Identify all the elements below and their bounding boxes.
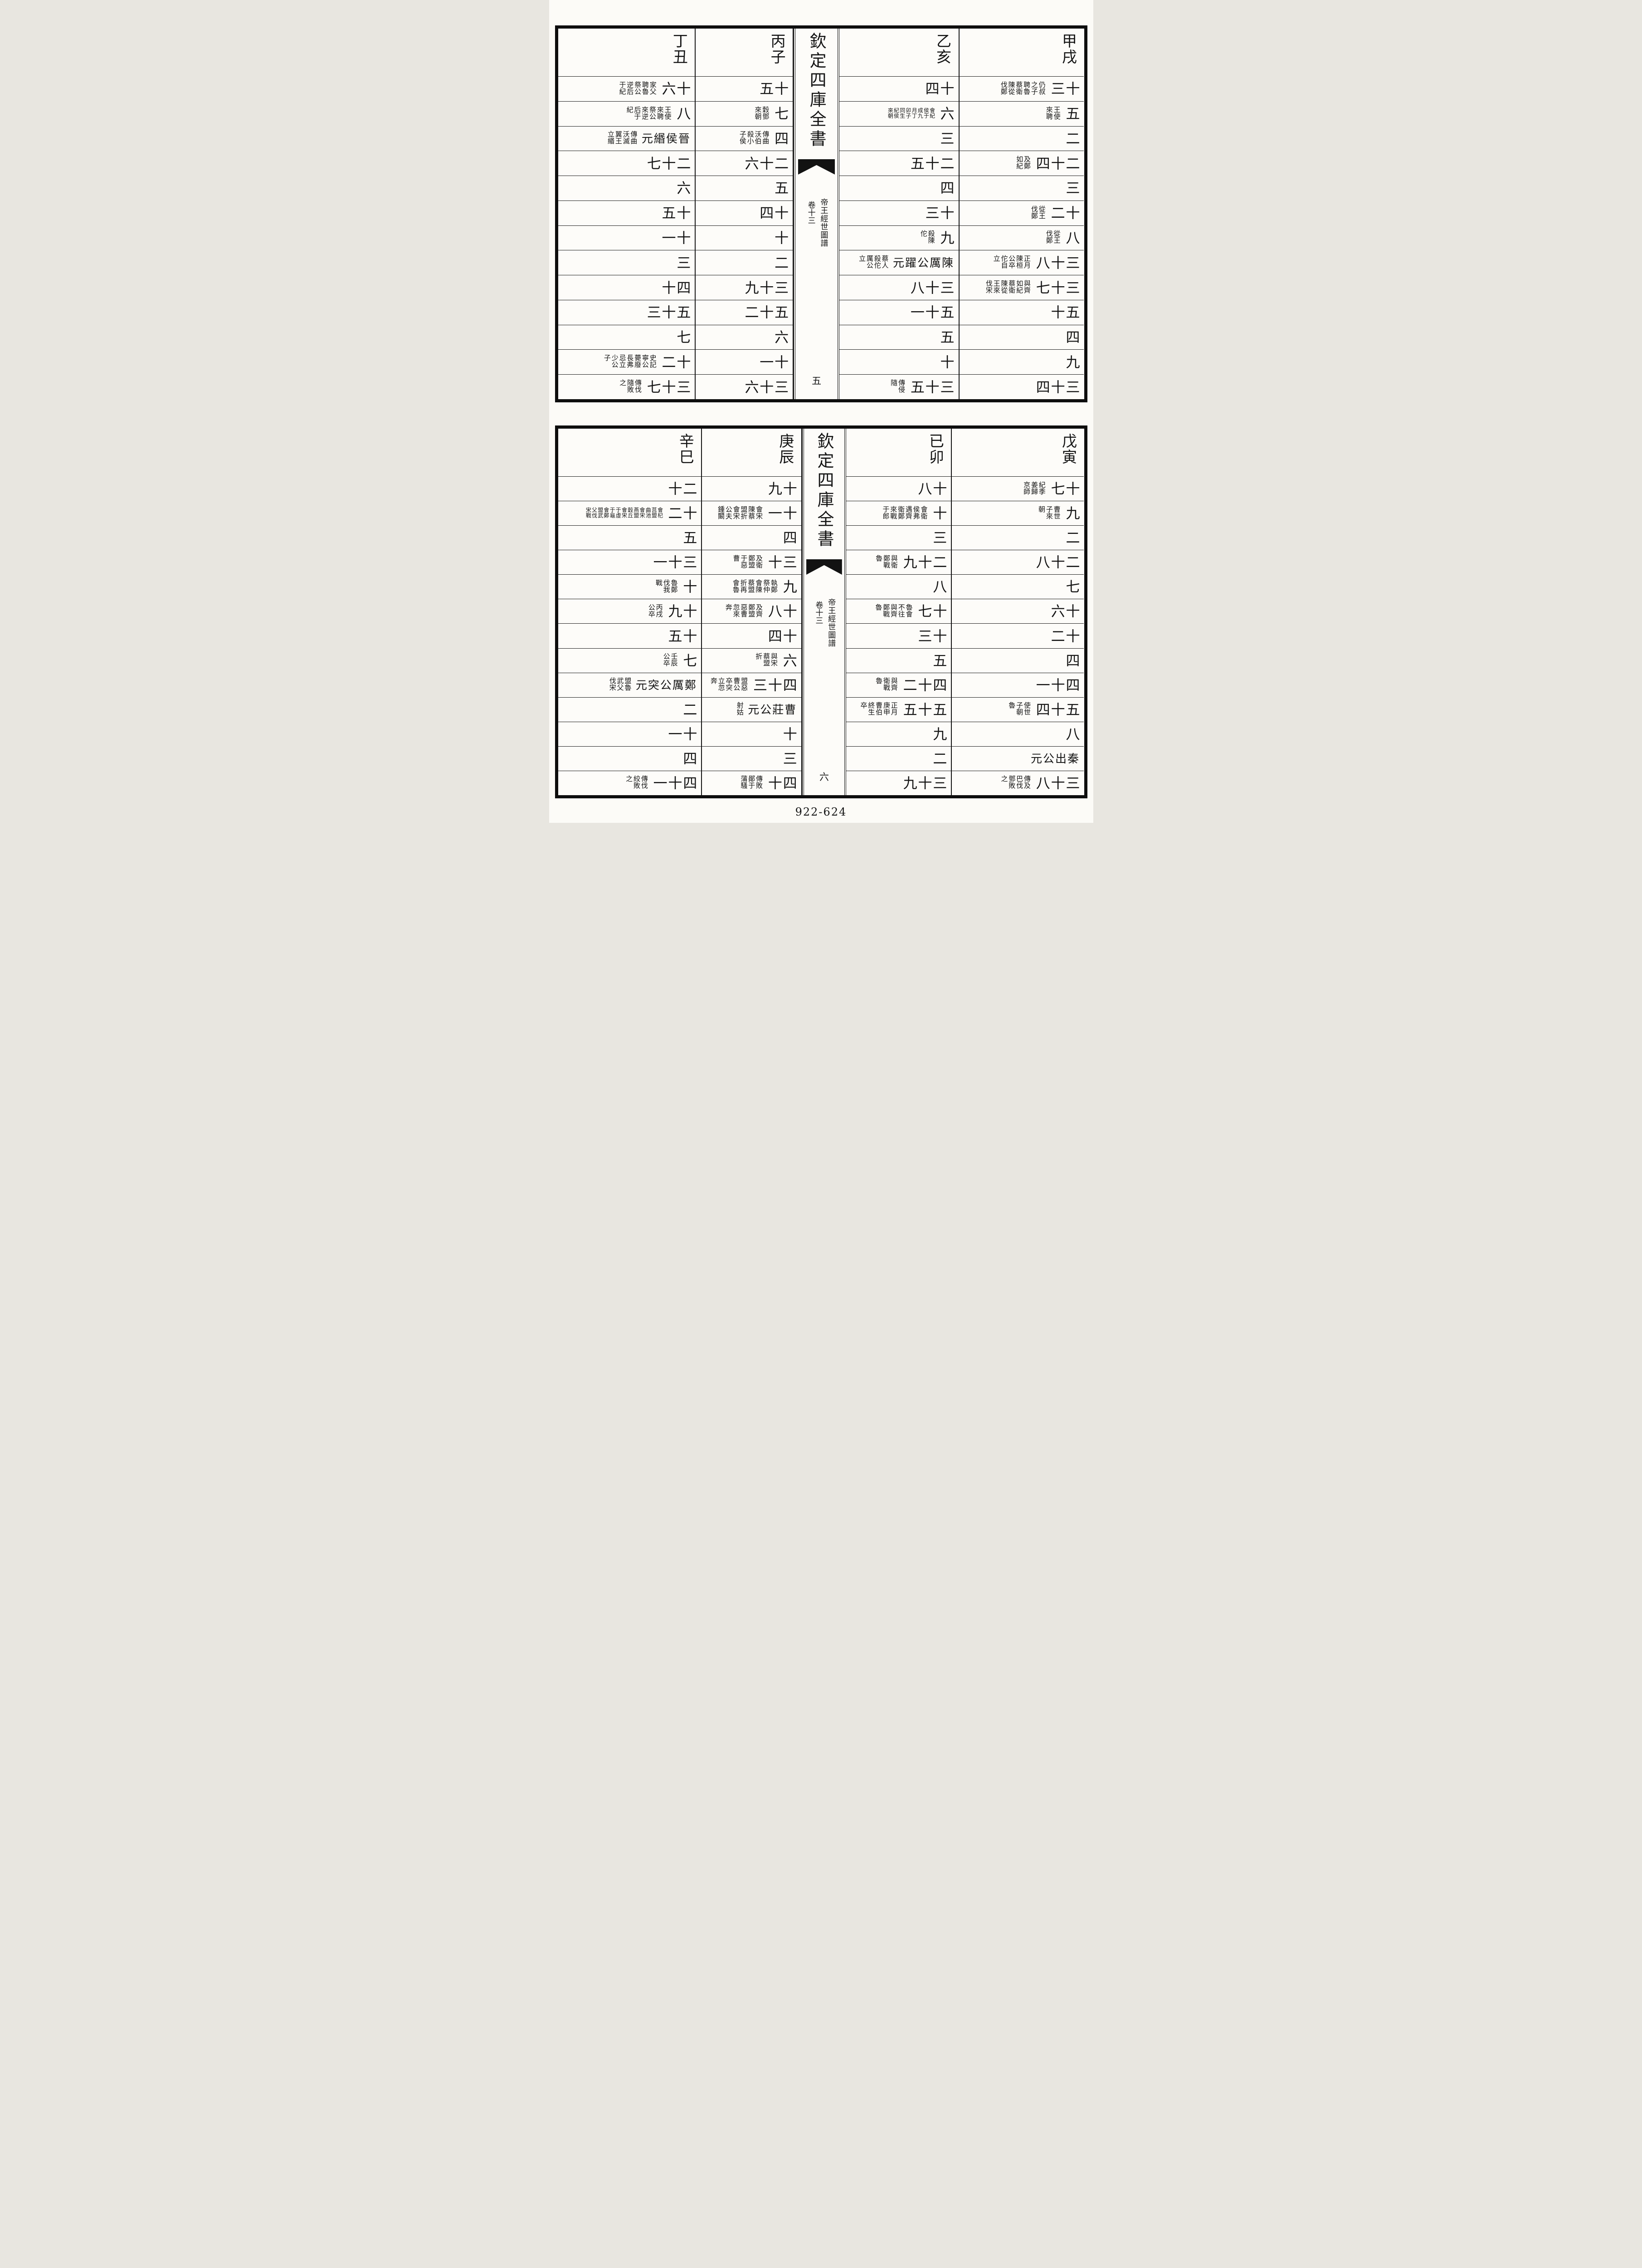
year-row: 十四 [839, 77, 958, 102]
year-number: 十二 [1049, 205, 1079, 220]
year-row: 七 [952, 575, 1084, 599]
event-annotation: 丙戌公卒 [648, 604, 663, 620]
year-number: 二十五 [908, 156, 953, 171]
year-number: 十 [938, 355, 953, 370]
year-number: 十 [931, 506, 945, 521]
year-column-已卯: 已卯十八會衛侯弗遇齊衛鄭來戰于郎十三與衛鄭戰魯二十九八魯會不往與齊鄭戰魯十七十三… [846, 429, 952, 795]
stem-header: 辛巳 [677, 433, 693, 465]
year-number: 三十一 [651, 555, 696, 570]
year-number: 八 [931, 579, 945, 594]
year-row: 三 [960, 176, 1084, 201]
event-annotation: 傳敗鄖于蒲騷 [740, 775, 763, 792]
event-annotation: 紀季姜歸京師 [1023, 481, 1045, 498]
year-row: 五 [696, 176, 793, 201]
year-row: 三十九 [696, 275, 793, 300]
year-row: 三十六 [696, 375, 793, 399]
spine-column: 欽定四庫全書帝王經世圖譜卷十三六 [802, 429, 846, 795]
event-annotation: 傳侵隨 [890, 379, 905, 396]
event-annotation: 盟惡曹公卒突立忽奔 [710, 677, 748, 694]
year-number: 五十一 [908, 305, 953, 320]
year-number: 九 [938, 230, 953, 245]
year-row: 二十五 [839, 151, 958, 176]
year-number: 七 [681, 653, 696, 668]
year-row: 五 [846, 649, 951, 673]
event-annotation: 與齊如紀蔡衛陳從王來伐宋 [985, 280, 1031, 296]
year-number: 三十八 [1034, 776, 1079, 791]
year-row: 二十八 [952, 550, 1084, 575]
year-number: 十一 [660, 230, 690, 245]
folio-grid: 丁丑家父聘魯祭公逆后于紀十六王使來聘祭公來逆后于紀八傳曲沃滅翼王立緡晉侯緡元二十… [558, 29, 1084, 399]
year-number: 十一 [666, 727, 696, 742]
spine-column: 欽定四庫全書帝王經世圖譜卷十三五 [794, 29, 839, 399]
year-row: 六 [558, 176, 695, 201]
year-number: 十三 [1049, 81, 1079, 96]
year-row: 十四 [696, 201, 793, 226]
event-annotation: 傳伐隨敗之 [619, 379, 641, 396]
year-number: 三 [938, 131, 953, 146]
year-number: 三十六 [743, 380, 788, 395]
year-row: 四 [839, 176, 958, 201]
stem-header: 乙亥 [935, 33, 950, 65]
year-row: 及鄭如紀二十四 [960, 151, 1084, 176]
year-row: 紀季姜歸京師十七 [952, 477, 1084, 501]
event-annotation: 使世子朝魯 [1008, 702, 1031, 718]
year-row: 五十 [960, 300, 1084, 325]
year-row: 三 [846, 526, 951, 550]
year-number: 十七 [916, 604, 946, 619]
year-row: 史記寧公薨廢長弗忌立少公子十二 [558, 350, 695, 375]
event-annotation: 蔡人殺佗厲公立 [858, 255, 888, 271]
year-rows: 仍叔之子聘魯蔡衛陳從伐鄭十三王使來聘五二及鄭如紀二十四三從王伐鄭十二從王伐鄭八正… [960, 77, 1084, 399]
event-annotation: 及衛鄭盟于惡曹 [732, 555, 763, 571]
ruler-accession-text: 曹莊公元 [747, 704, 796, 716]
year-row: 十五 [558, 201, 695, 226]
year-number: 十三 [923, 205, 953, 220]
year-number: 三 [1064, 181, 1079, 196]
year-number: 三十八 [1034, 255, 1079, 270]
volume-label: 卷十三 [814, 601, 822, 624]
year-row: 四 [952, 649, 1084, 673]
stem-header: 庚辰 [777, 433, 793, 465]
year-number: 四十 [660, 280, 690, 295]
year-number: 九 [1064, 355, 1079, 370]
year-column-辛巳: 辛巳二十會杞莒盟曲池會宋燕盟穀丘會宋于虛于龜會鄭盟武父伐宋戰十二五三十一魯鄭伐我… [558, 429, 702, 795]
ruler-accession-text: 秦出公元 [1029, 753, 1078, 765]
year-number: 九 [1064, 506, 1079, 521]
year-number: 二 [1064, 530, 1079, 545]
event-annotation: 從王伐鄭 [1045, 230, 1061, 246]
year-row: 正月陳桓公卒佗自立三十八 [960, 250, 1084, 275]
stem-header-cell: 辛巳 [558, 429, 702, 477]
event-annotation: 殺陳佗 [920, 230, 935, 246]
year-number: 八 [1064, 230, 1079, 245]
year-column-甲戌: 甲戌仍叔之子聘魯蔡衛陳從伐鄭十三王使來聘五二及鄭如紀二十四三從王伐鄭十二從王伐鄭… [960, 29, 1084, 399]
event-annotation: 史記寧公薨廢長弗忌立少公子 [603, 354, 657, 371]
year-row: 與宋蔡盟折六 [702, 649, 801, 673]
year-row: 十 [696, 226, 793, 251]
event-annotation: 會衛侯弗遇齊衛鄭來戰于郎 [882, 506, 928, 522]
stem-header-cell: 已卯 [846, 429, 951, 477]
event-annotation: 及鄭如紀 [1015, 156, 1031, 172]
year-column-丙子: 丙子十五穀鄧來朝七傳曲沃伯殺小子侯四二十六五十四十二三十九五十二六十一三十六 [696, 29, 794, 399]
stem-header-cell: 乙亥 [839, 29, 958, 77]
event-annotation: 正月陳桓公卒佗自立 [993, 255, 1031, 271]
fishtail-icon [806, 559, 842, 575]
year-number: 十 [681, 579, 696, 594]
event-annotation: 及齊鄭盟惡曹忽來奔 [725, 604, 763, 620]
year-number: 二 [1064, 131, 1079, 146]
year-row: 十 [839, 350, 958, 375]
year-number: 五 [1064, 106, 1079, 121]
year-row: 六 [696, 325, 793, 350]
year-row: 傳伐絞敗之四十一 [558, 771, 702, 795]
page-number: 六 [804, 770, 844, 783]
stem-header-cell: 庚辰 [702, 429, 801, 477]
year-row: 曹世子來朝九 [952, 501, 1084, 526]
event-annotation: 魯鄭伐我戰 [655, 579, 677, 596]
year-row: 穀鄧來朝七 [696, 102, 793, 127]
year-number: 十五 [666, 629, 696, 644]
year-row: 秦出公元 [952, 747, 1084, 771]
event-annotation: 傳及巴伐鄧敗之 [1000, 775, 1031, 792]
year-row: 三 [839, 127, 958, 152]
event-annotation: 正月庚申曹伯終生卒 [860, 702, 898, 718]
year-row: 四十 [558, 275, 695, 300]
year-row: 三十四 [960, 375, 1084, 399]
year-number: 八 [675, 106, 690, 121]
year-number: 三 [931, 530, 945, 545]
year-rows: 十五穀鄧來朝七傳曲沃伯殺小子侯四二十六五十四十二三十九五十二六十一三十六 [696, 77, 793, 399]
year-row: 十九 [702, 477, 801, 501]
stem-header-cell: 甲戌 [960, 29, 1084, 77]
book-title: 帝王經世圖譜 [826, 598, 834, 647]
year-row: 七 [558, 325, 695, 350]
year-row: 王使來聘祭公來逆后于紀八 [558, 102, 695, 127]
stem-header: 丙子 [769, 33, 785, 65]
year-number: 十三 [916, 629, 946, 644]
year-number: 四 [1064, 330, 1079, 345]
year-row: 五 [839, 325, 958, 350]
year-number: 六 [772, 330, 787, 345]
year-row: 壬辰公卒七 [558, 649, 702, 673]
event-annotation: 與衛鄭戰魯 [875, 555, 897, 571]
year-row: 從王伐鄭八 [960, 226, 1084, 251]
year-column-丁丑: 丁丑家父聘魯祭公逆后于紀十六王使來聘祭公來逆后于紀八傳曲沃滅翼王立緡晉侯緡元二十… [558, 29, 696, 399]
event-annotation: 射姑 [736, 702, 744, 718]
event-annotation: 會杞莒盟曲池會宋燕盟穀丘會宋于虛于龜會鄭盟武父伐宋戰 [585, 507, 663, 520]
event-annotation: 穀鄧來朝 [754, 106, 770, 122]
event-annotation: 與齊衛戰魯 [875, 677, 897, 694]
year-row: 五十三 [558, 300, 695, 325]
event-annotation: 傳伐絞敗之 [625, 775, 648, 792]
year-rows: 十九會宋陳蔡盟折會宋公夫鍾闞十一四及衛鄭盟于惡曹三十執鄭祭仲會陳蔡盟折再會魯九及… [702, 477, 801, 795]
year-row: 與齊如紀蔡衛陳從王來伐宋三十七 [960, 275, 1084, 300]
year-number: 七 [772, 106, 787, 121]
year-row: 從王伐鄭十二 [960, 201, 1084, 226]
year-row: 十六 [952, 599, 1084, 624]
year-number: 八 [1064, 727, 1079, 742]
event-annotation: 盟魯武父伐宋 [609, 677, 631, 694]
stem-header: 丁丑 [671, 33, 687, 65]
year-row: 蔡人殺佗厲公立陳厲公躍元 [839, 250, 958, 275]
event-annotation: 仍叔之子聘魯蔡衛陳從伐鄭 [1000, 81, 1046, 98]
year-row: 魯會不往與齊鄭戰魯十七 [846, 599, 951, 624]
year-number: 十四 [757, 205, 787, 220]
year-number: 六 [938, 106, 953, 121]
year-row: 五十一 [839, 300, 958, 325]
year-row: 與齊衛戰魯四十二 [846, 673, 951, 698]
year-row: 三十八 [839, 275, 958, 300]
year-row: 十五 [558, 624, 702, 648]
year-row: 及齊鄭盟惡曹忽來奔十八 [702, 599, 801, 624]
year-row: 二 [558, 698, 702, 722]
year-row: 使世子朝魯五十四 [952, 698, 1084, 722]
year-row: 與衛鄭戰魯二十九 [846, 550, 951, 575]
stem-header: 已卯 [927, 433, 943, 465]
year-number: 十 [781, 727, 796, 742]
year-number: 十八 [916, 481, 946, 496]
year-row: 會衛侯弗遇齊衛鄭來戰于郎十 [846, 501, 951, 526]
year-number: 九 [931, 727, 945, 742]
event-annotation: 王使來聘祭公來逆后于紀 [626, 106, 672, 122]
year-number: 十六 [1049, 604, 1079, 619]
year-number: 三十四 [1034, 380, 1079, 395]
year-number: 十二 [1049, 629, 1079, 644]
year-number: 十一 [757, 355, 787, 370]
year-number: 二十八 [1034, 555, 1079, 570]
stem-header-cell: 丙子 [696, 29, 793, 77]
year-row: 九 [846, 722, 951, 747]
year-row: 會杞莒盟曲池會宋燕盟穀丘會宋于虛于龜會鄭盟武父伐宋戰十二 [558, 501, 702, 526]
year-number: 五 [772, 181, 787, 196]
year-number: 十二 [660, 355, 690, 370]
year-row: 十八 [846, 477, 951, 501]
year-row: 會宋陳蔡盟折會宋公夫鍾闞十一 [702, 501, 801, 526]
year-number: 五十二 [743, 305, 788, 320]
year-row: 執鄭祭仲會陳蔡盟折再會魯九 [702, 575, 801, 599]
lower-folio-block: 辛巳二十會杞莒盟曲池會宋燕盟穀丘會宋于虛于龜會鄭盟武父伐宋戰十二五三十一魯鄭伐我… [555, 425, 1087, 798]
year-row: 十一 [558, 226, 695, 251]
year-row: 王使來聘五 [960, 102, 1084, 127]
page-number: 五 [795, 374, 838, 387]
book-title: 帝王經世圖譜 [819, 198, 827, 247]
year-number: 三 [675, 255, 690, 270]
year-number: 十六 [660, 81, 690, 96]
event-annotation: 與宋蔡盟折 [755, 653, 777, 669]
year-number: 四 [938, 181, 953, 196]
year-number: 四 [1064, 653, 1079, 668]
year-number: 四 [781, 530, 796, 545]
year-column-庚辰: 庚辰十九會宋陳蔡盟折會宋公夫鍾闞十一四及衛鄭盟于惡曹三十執鄭祭仲會陳蔡盟折再會魯… [702, 429, 802, 795]
year-row: 十三 [846, 624, 951, 648]
year-row: 傳曲沃滅翼王立緡晉侯緡元 [558, 127, 695, 152]
year-row: 四 [960, 325, 1084, 350]
year-row: 二 [952, 526, 1084, 550]
year-number: 五十 [1049, 305, 1079, 320]
year-number: 三十八 [908, 280, 953, 295]
year-number: 十七 [1049, 481, 1079, 496]
year-number: 五 [931, 653, 945, 668]
spine-labels: 帝王經世圖譜卷十三 [814, 598, 835, 647]
year-rows: 二十會杞莒盟曲池會宋燕盟穀丘會宋于虛于龜會鄭盟武父伐宋戰十二五三十一魯鄭伐我戰十… [558, 477, 702, 795]
year-row: 傳敗鄖于蒲騷四十 [702, 771, 801, 795]
year-number: 六 [675, 181, 690, 196]
year-number: 十八 [766, 604, 796, 619]
year-row: 丙戌公卒十九 [558, 599, 702, 624]
year-number: 三 [781, 751, 796, 766]
year-number: 三十七 [645, 380, 690, 395]
year-column-乙亥: 乙亥十四會紀侯于成九月丁卯子同生紀侯來朝六三二十五四十三殺陳佗九蔡人殺佗厲公立陳… [839, 29, 959, 399]
year-row: 二十 [558, 477, 702, 501]
event-annotation: 傳曲沃伯殺小子侯 [739, 131, 769, 147]
year-number: 十九 [666, 604, 696, 619]
event-annotation: 魯會不往與齊鄭戰魯 [875, 604, 913, 620]
year-number: 五 [938, 330, 953, 345]
year-number: 四十一 [1034, 678, 1079, 693]
year-row: 盟惡曹公卒突立忽奔四十三 [702, 673, 801, 698]
year-number: 三十五 [908, 380, 953, 395]
year-number: 三十七 [1034, 280, 1079, 295]
year-number: 十四 [766, 629, 796, 644]
year-number: 四十三 [751, 678, 796, 693]
year-number: 二十七 [645, 156, 690, 171]
year-row: 正月庚申曹伯終生卒五十五 [846, 698, 951, 722]
year-row: 十一 [558, 722, 702, 747]
year-row: 五十二 [696, 300, 793, 325]
year-number: 六 [781, 653, 796, 668]
year-number: 二十四 [1034, 156, 1079, 171]
year-row: 魯鄭伐我戰十 [558, 575, 702, 599]
year-number: 三十九 [901, 776, 946, 791]
year-number: 十一 [766, 506, 796, 521]
year-number: 四十二 [901, 678, 946, 693]
year-row: 四 [702, 526, 801, 550]
year-row: 十三 [839, 201, 958, 226]
year-rows: 十四會紀侯于成九月丁卯子同生紀侯來朝六三二十五四十三殺陳佗九蔡人殺佗厲公立陳厲公… [839, 77, 958, 399]
event-annotation: 執鄭祭仲會陳蔡盟折再會魯 [732, 579, 778, 596]
year-row: 會紀侯于成九月丁卯子同生紀侯來朝六 [839, 102, 958, 127]
year-number: 十 [772, 230, 787, 245]
spine-title: 欽定四庫全書 [808, 32, 825, 149]
year-row: 盟魯武父伐宋鄭厲公突元 [558, 673, 702, 698]
year-row: 二十七 [558, 151, 695, 176]
event-annotation: 家父聘魯祭公逆后于紀 [619, 81, 657, 98]
footer-code: 922-624 [549, 806, 1093, 818]
year-number: 九 [781, 579, 796, 594]
year-number: 二 [772, 255, 787, 270]
year-number: 五十三 [645, 305, 690, 320]
year-number: 七 [675, 330, 690, 345]
year-number: 三十 [766, 555, 796, 570]
year-row: 三十九 [846, 771, 951, 795]
year-row: 九 [960, 350, 1084, 375]
year-row: 二 [960, 127, 1084, 152]
year-number: 二十 [666, 481, 696, 496]
year-row: 十一 [696, 350, 793, 375]
year-number: 十五 [660, 205, 690, 220]
year-number: 三十九 [743, 280, 788, 295]
year-row: 殺陳佗九 [839, 226, 958, 251]
year-rows: 十八會衛侯弗遇齊衛鄭來戰于郎十三與衛鄭戰魯二十九八魯會不往與齊鄭戰魯十七十三五與… [846, 477, 951, 795]
stem-header-cell: 戊寅 [952, 429, 1084, 477]
event-annotation: 會紀侯于成九月丁卯子同生紀侯來朝 [887, 108, 935, 121]
year-row: 傳及巴伐鄧敗之三十八 [952, 771, 1084, 795]
year-number: 二十九 [901, 555, 946, 570]
year-row: 四 [558, 747, 702, 771]
year-row: 二 [846, 747, 951, 771]
year-row: 傳伐隨敗之三十七 [558, 375, 695, 399]
year-number: 七 [1064, 579, 1079, 594]
year-row: 二 [696, 250, 793, 275]
year-number: 五十四 [1034, 702, 1079, 717]
event-annotation: 曹世子來朝 [1038, 506, 1060, 522]
fishtail-icon [798, 159, 835, 175]
year-number: 十五 [757, 81, 787, 96]
folio-grid: 辛巳二十會杞莒盟曲池會宋燕盟穀丘會宋于虛于龜會鄭盟武父伐宋戰十二五三十一魯鄭伐我… [558, 429, 1084, 795]
year-column-戊寅: 戊寅紀季姜歸京師十七曹世子來朝九二二十八七十六十二四四十一使世子朝魯五十四八秦出… [952, 429, 1084, 795]
event-annotation: 傳曲沃滅翼王立緡 [607, 131, 637, 147]
volume-label: 卷十三 [806, 201, 814, 224]
year-rows: 紀季姜歸京師十七曹世子來朝九二二十八七十六十二四四十一使世子朝魯五十四八秦出公元… [952, 477, 1084, 795]
year-row: 仍叔之子聘魯蔡衛陳從伐鄭十三 [960, 77, 1084, 102]
year-number: 四 [681, 751, 696, 766]
event-annotation: 從王伐鄭 [1030, 205, 1046, 222]
event-annotation: 壬辰公卒 [663, 653, 678, 669]
year-row: 射姑曹莊公元 [702, 698, 801, 722]
year-row: 三十一 [558, 550, 702, 575]
year-number: 四十一 [651, 776, 696, 791]
year-number: 四十 [766, 776, 796, 791]
event-annotation: 會宋陳蔡盟折會宋公夫鍾闞 [717, 506, 763, 522]
year-row: 二十六 [696, 151, 793, 176]
ruler-accession-text: 陳厲公躍元 [892, 257, 953, 269]
year-row: 家父聘魯祭公逆后于紀十六 [558, 77, 695, 102]
year-number: 二 [931, 751, 945, 766]
ruler-accession-text: 晉侯緡元 [640, 132, 689, 145]
stem-header: 甲戌 [1060, 33, 1076, 65]
year-number: 五 [681, 530, 696, 545]
year-row: 及衛鄭盟于惡曹三十 [702, 550, 801, 575]
event-annotation: 王使來聘 [1045, 106, 1061, 122]
year-row: 八 [952, 722, 1084, 747]
year-number: 二十六 [743, 156, 788, 171]
year-number: 十四 [923, 81, 953, 96]
year-row: 三 [558, 250, 695, 275]
year-row: 十五 [696, 77, 793, 102]
ruler-accession-text: 鄭厲公突元 [634, 679, 696, 691]
year-row: 八 [846, 575, 951, 599]
year-number: 十九 [766, 481, 796, 496]
spine-labels: 帝王經世圖譜卷十三 [806, 198, 827, 247]
year-row: 五 [558, 526, 702, 550]
year-number: 五十五 [901, 702, 946, 717]
year-row: 十 [702, 722, 801, 747]
year-rows: 家父聘魯祭公逆后于紀十六王使來聘祭公來逆后于紀八傳曲沃滅翼王立緡晉侯緡元二十七六… [558, 77, 695, 399]
year-row: 十二 [952, 624, 1084, 648]
spine-title: 欽定四庫全書 [816, 432, 833, 549]
year-row: 傳曲沃伯殺小子侯四 [696, 127, 793, 152]
stem-header-cell: 丁丑 [558, 29, 695, 77]
year-number: 十二 [666, 506, 696, 521]
upper-folio-block: 丁丑家父聘魯祭公逆后于紀十六王使來聘祭公來逆后于紀八傳曲沃滅翼王立緡晉侯緡元二十… [555, 25, 1087, 402]
year-row: 十四 [702, 624, 801, 648]
year-number: 四 [772, 131, 787, 146]
year-row: 傳侵隨三十五 [839, 375, 958, 399]
year-row: 四十一 [952, 673, 1084, 698]
stem-header: 戊寅 [1060, 433, 1076, 465]
year-number: 二 [681, 702, 696, 717]
year-row: 三 [702, 747, 801, 771]
